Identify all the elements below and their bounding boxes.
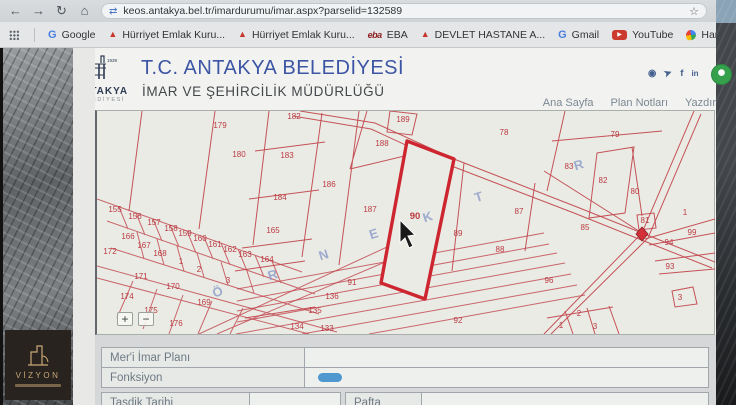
parcel-label: 158 — [164, 224, 178, 233]
page-title: T.C. ANTAKYA BELEDİYESİ — [141, 57, 404, 80]
red-caret-icon: ▲ — [421, 30, 430, 39]
parcel-label: 171 — [134, 272, 148, 281]
parcel-label: 169 — [197, 298, 211, 307]
parcel-label: 176 — [169, 319, 183, 328]
back-icon[interactable]: ← — [6, 2, 25, 20]
parcel-label: 172 — [103, 247, 117, 256]
parcel-label: 1 — [559, 321, 564, 330]
screen: ← → ↻ ⌂ ⇄ keos.antakya.bel.tr/imardurumu… — [0, 0, 736, 405]
bookmark-star-icon[interactable]: ☆ — [689, 5, 699, 18]
bookmark-item[interactable]: ▲Hürriyet Emlak Kuru... — [108, 29, 225, 41]
parcel-label: 91 — [348, 278, 357, 287]
facebook-icon[interactable]: f — [680, 68, 683, 79]
parcel-label: 166 — [121, 232, 135, 241]
bookmarks-bar: GGoogle▲Hürriyet Emlak Kuru...▲Hürriyet … — [0, 22, 736, 48]
parcel-label: 85 — [581, 223, 590, 232]
watermark-brand: VİZYON — [16, 371, 61, 380]
parcel-label: 170 — [166, 282, 180, 291]
pinterest-icon[interactable]: ◉ — [648, 68, 656, 79]
map-zoom-out-button[interactable]: − — [138, 312, 154, 326]
parcel-label: 164 — [260, 255, 274, 264]
bookmark-label: EBA — [387, 29, 408, 41]
building-logo-icon — [25, 343, 51, 367]
field-label: Fonksiyon — [102, 368, 305, 387]
parcel-label: 96 — [545, 276, 554, 285]
divider — [34, 28, 35, 42]
parcel-label: 82 — [599, 176, 608, 185]
parcel-label: 184 — [273, 193, 287, 202]
parcel-label: 90 — [410, 211, 421, 222]
bookmark-item[interactable]: ▲DEVLET HASTANE A... — [421, 29, 545, 41]
bookmark-label: YouTube — [632, 29, 673, 41]
eba-logo-icon: eba — [368, 30, 382, 40]
parcel-label: 93 — [666, 262, 675, 271]
street-letter: R — [572, 156, 586, 173]
parcel-label: 163 — [238, 250, 252, 259]
twitter-icon[interactable]: ➤ — [663, 67, 674, 80]
map-zoom-in-button[interactable]: + — [117, 312, 133, 326]
watermark-logo-box: VİZYON — [5, 330, 71, 400]
parcel-label: 136 — [325, 292, 339, 301]
forward-icon[interactable]: → — [29, 2, 48, 20]
parcel-label: 87 — [515, 207, 524, 216]
social-icons: ◉ ➤ f in — [648, 68, 699, 79]
parcel-label: 168 — [153, 249, 167, 258]
bookmark-item[interactable]: ebaEBA — [368, 29, 408, 41]
parcel-label: 99 — [688, 228, 697, 237]
table-row: Pafta — [346, 393, 708, 405]
parcel-label: 174 — [120, 292, 134, 301]
parcel-label: 180 — [232, 150, 246, 159]
table-row: Fonksiyon — [102, 368, 708, 387]
parcel-label: 88 — [496, 245, 505, 254]
parcel-label: 1 — [179, 257, 184, 266]
maps-pin-icon — [686, 29, 697, 40]
accessibility-widget-button[interactable] — [711, 64, 732, 85]
parcel-label: 94 — [665, 238, 674, 247]
parcel-label: 2 — [577, 309, 582, 318]
home-icon[interactable]: ⌂ — [75, 2, 94, 20]
field-label: Pafta — [346, 393, 422, 405]
field-label: Tasdik Tarihi — [102, 393, 250, 405]
parcel-label: 159 — [178, 229, 192, 238]
parcel-label: 165 — [266, 226, 280, 235]
linkedin-icon[interactable]: in — [691, 69, 698, 78]
right-watermark-strip — [716, 0, 736, 405]
bookmark-label: DEVLET HASTANE A... — [435, 29, 545, 41]
reload-icon[interactable]: ↻ — [52, 2, 71, 20]
bookmark-item[interactable]: ▶YouTube — [612, 29, 673, 41]
svg-text:1939: 1939 — [107, 58, 118, 63]
watermark-tagline — [15, 384, 61, 387]
youtube-icon: ▶ — [612, 30, 627, 40]
nav-link-ana-sayfa[interactable]: Ana Sayfa — [543, 97, 594, 109]
field-value — [250, 393, 340, 405]
info-panel: Mer'i İmar Planı Fonksiyon Tasdik Tarihi — [95, 335, 716, 405]
bookmark-item[interactable]: GGmail — [558, 29, 599, 41]
field-label: Mer'i İmar Planı — [102, 348, 305, 367]
page-subtitle: İMAR VE ŞEHİRCİLİK MÜDÜRLÜĞÜ — [142, 84, 385, 99]
left-watermark-strip: VİZYON — [0, 48, 95, 405]
parcel-label: 80 — [631, 187, 640, 196]
parcel-label: 187 — [363, 205, 377, 214]
bookmark-label: Google — [62, 29, 96, 41]
nav-link-plan-notlar-[interactable]: Plan Notları — [611, 97, 668, 109]
parcel-label: 81 — [641, 216, 650, 225]
parcel-label: 78 — [500, 128, 509, 137]
parcel-label: 155 — [108, 205, 122, 214]
parcel-label: 134 — [290, 322, 304, 331]
parcel-label: 182 — [287, 112, 301, 121]
street-letter: E — [367, 225, 380, 242]
parcel-label: 156 — [128, 212, 142, 221]
parcel-label: 167 — [137, 241, 151, 250]
bookmark-item[interactable]: ▲Hürriyet Emlak Kuru... — [238, 29, 355, 41]
parcel-label: 157 — [147, 218, 161, 227]
parcel-label: 160 — [193, 234, 207, 243]
parcel-label: 161 — [208, 240, 222, 249]
function-color-badge — [318, 373, 342, 382]
street-letter: T — [473, 188, 485, 205]
bookmark-label: Hürriyet Emlak Kuru... — [122, 29, 225, 41]
site-info-icon[interactable]: ⇄ — [109, 6, 117, 17]
field-value — [305, 348, 708, 367]
table-row: Mer'i İmar Planı — [102, 348, 708, 368]
parcel-label: 188 — [375, 139, 389, 148]
url-text[interactable]: keos.antakya.bel.tr/imardurumu/imar.aspx… — [123, 5, 402, 17]
parcel-label: 186 — [322, 180, 336, 189]
keos-page: 1939 ANTAKYA BELEDİYESİ T.C. ANTAKYA BEL… — [0, 48, 736, 405]
parcel-label: 3 — [593, 322, 598, 331]
header-nav: Ana SayfaPlan NotlarıYazdır — [540, 97, 716, 109]
google-g-icon: G — [558, 29, 567, 41]
bookmark-item[interactable]: GGoogle — [48, 29, 95, 41]
parcel-label: 89 — [454, 229, 463, 238]
table-row: Tasdik Tarihi — [102, 393, 340, 405]
nav-link-yazd-r[interactable]: Yazdır — [685, 97, 716, 109]
parcel-label: 3 — [226, 276, 231, 285]
parcel-label: 179 — [213, 121, 227, 130]
parcel-label: 183 — [280, 151, 294, 160]
parcel-label: 79 — [611, 130, 620, 139]
red-caret-icon: ▲ — [238, 30, 247, 39]
red-caret-icon: ▲ — [108, 30, 117, 39]
parcel-label: 1 — [683, 208, 688, 217]
parcel-label: 162 — [223, 245, 237, 254]
parcel-label: 2 — [197, 265, 202, 274]
bookmark-label: Gmail — [572, 29, 599, 41]
parcel-label: 3 — [678, 293, 683, 302]
parcel-label: 189 — [396, 115, 410, 124]
bookmark-label: Hürriyet Emlak Kuru... — [252, 29, 355, 41]
browser-toolbar: ← → ↻ ⌂ ⇄ keos.antakya.bel.tr/imardurumu… — [0, 0, 736, 22]
google-g-icon: G — [48, 29, 57, 41]
parcel-label: 135 — [308, 306, 322, 315]
street-letter: N — [317, 246, 331, 263]
apps-grid-icon[interactable] — [9, 30, 19, 40]
parcel-map[interactable]: 1791801821831841861871881899078798382808… — [95, 110, 715, 335]
parcel-label: 92 — [454, 316, 463, 325]
address-bar[interactable]: ⇄ keos.antakya.bel.tr/imardurumu/imar.as… — [101, 3, 707, 19]
parcel-label: 133 — [320, 324, 334, 333]
field-value — [305, 368, 708, 387]
field-value — [422, 393, 708, 405]
